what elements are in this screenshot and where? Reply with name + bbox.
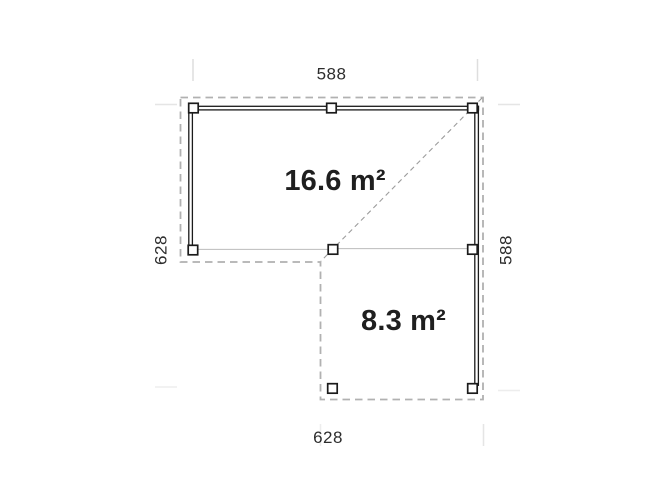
- area-label-small: 8.3 m²: [361, 305, 446, 337]
- post-top-middle: [327, 103, 337, 113]
- post-top-right: [468, 103, 478, 113]
- post-top-left: [189, 103, 199, 113]
- post-bottom-right: [468, 384, 478, 394]
- post-center: [328, 245, 338, 255]
- dimension-label-top: 588: [317, 65, 347, 84]
- dimension-label-bottom: 628: [313, 428, 343, 447]
- wall-left: [189, 106, 193, 251]
- post-middle-right: [468, 245, 478, 255]
- area-label-large: 16.6 m²: [284, 165, 385, 197]
- area-labels: 16.6 m² 8.3 m²: [284, 165, 446, 337]
- floor-plan-svg: 588 628 628 588 16.6 m² 8.3 m²: [0, 0, 667, 500]
- dimension-label-right: 588: [497, 235, 516, 265]
- post-bottom-left: [328, 384, 338, 394]
- dimension-label-left: 628: [152, 235, 171, 265]
- floor-plan-diagram: 588 628 628 588 16.6 m² 8.3 m²: [0, 0, 667, 500]
- post-middle-left: [188, 245, 198, 255]
